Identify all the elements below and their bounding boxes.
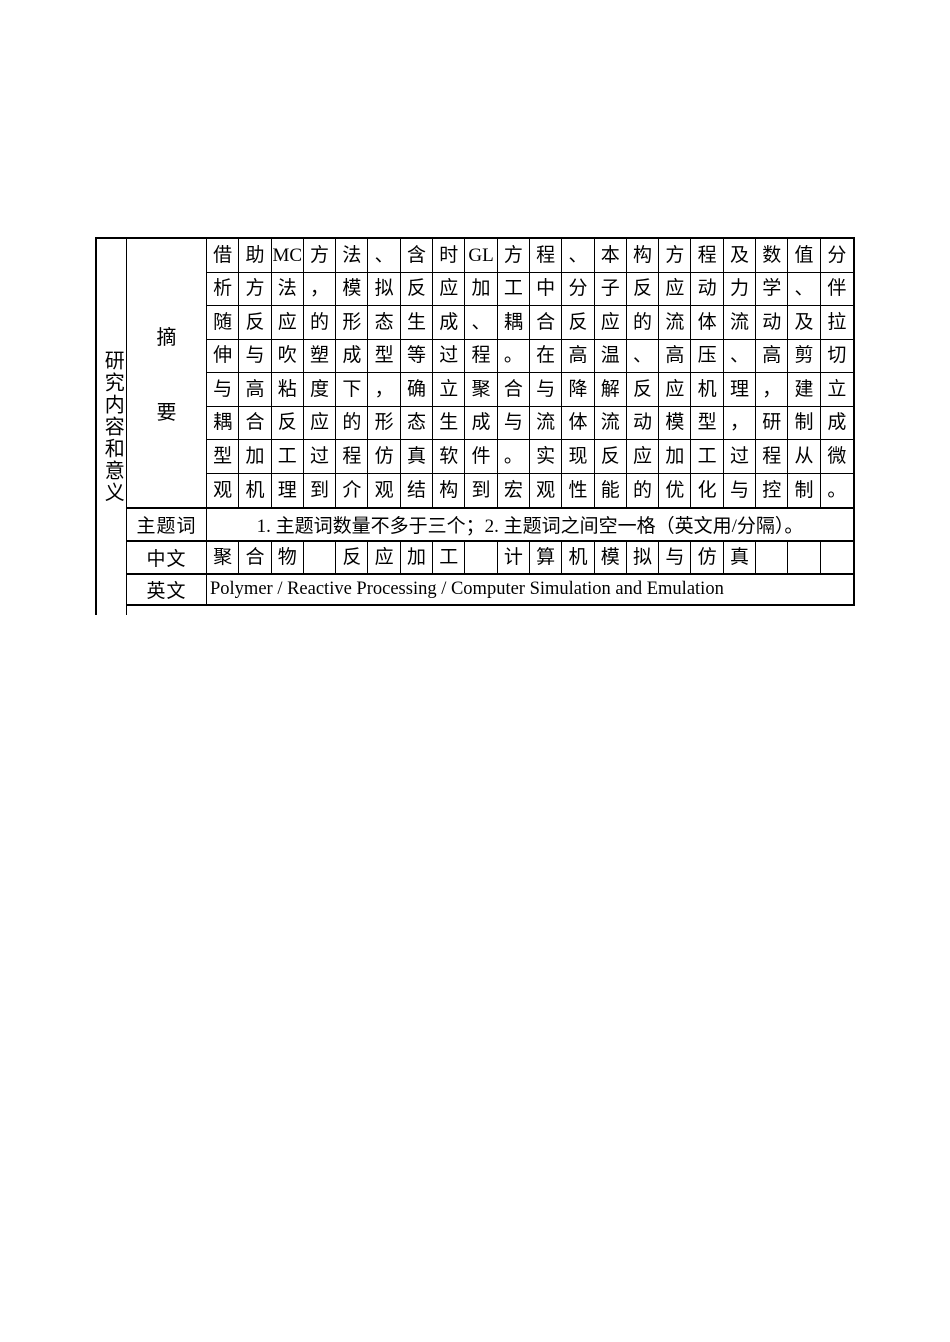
abstract-char-cell: 件 [465,440,497,474]
abstract-char-cell: 等 [401,340,433,374]
abstract-char-cell: 过 [724,440,756,474]
abstract-char-cell: 观 [207,474,239,508]
abstract-char-cell: GL [465,239,497,273]
abstract-char-cell: 切 [821,340,853,374]
abstract-char-cell: 工 [272,440,304,474]
abstract-char-cell: 体 [691,306,723,340]
abstract-char-cell: 反 [401,273,433,307]
abstract-char-cell: 型 [691,407,723,441]
abstract-char-cell: 、 [788,273,820,307]
abstract-char-cell: 反 [239,306,271,340]
abstract-char-cell: 态 [401,407,433,441]
abstract-char-cell: 。 [498,340,530,374]
abstract-char-cell: 观 [530,474,562,508]
abstract-label-cell: 摘 要 [127,239,207,507]
abstract-char-cell: 加 [239,440,271,474]
english-keywords-row: 英文 Polymer / Reactive Processing / Compu… [127,575,853,606]
abstract-char-cell: ， [756,373,788,407]
abstract-char-cell: 控 [756,474,788,508]
abstract-char-cell: 及 [788,306,820,340]
chinese-keyword-char-cell [821,542,853,573]
abstract-char-cell: 确 [401,373,433,407]
abstract-char-cell: 结 [401,474,433,508]
abstract-char-cell: 分 [562,273,594,307]
abstract-char-cell: 程 [465,340,497,374]
abstract-char-cell: 反 [272,407,304,441]
abstract-char-cell: 构 [627,239,659,273]
row-header-vertical-label: 研究内容和意义 [101,350,123,504]
abstract-char-cell: 态 [368,306,400,340]
abstract-char-cell: 成 [433,306,465,340]
abstract-char-cell: 应 [304,407,336,441]
abstract-char-cell: 伸 [207,340,239,374]
chinese-keyword-char-cell [304,542,336,573]
abstract-char-cell: 加 [659,440,691,474]
abstract-char-cell: 流 [595,407,627,441]
abstract-char-cell: 方 [659,239,691,273]
abstract-char-cell: 、 [627,340,659,374]
abstract-char-cell: ， [724,407,756,441]
chinese-keyword-char-cell: 聚 [207,542,239,573]
abstract-char-cell: 中 [530,273,562,307]
row-header-cell: 研究内容和意义 [95,237,127,615]
abstract-char-cell: 高 [562,340,594,374]
abstract-char-cell: 反 [595,440,627,474]
abstract-char-cell: 合 [239,407,271,441]
abstract-char-cell: 解 [595,373,627,407]
abstract-char-cell: 实 [530,440,562,474]
abstract-char-cell: 学 [756,273,788,307]
abstract-char-cell: 耦 [207,407,239,441]
chinese-keywords-row: 中文 聚合物反应加工计算机模拟与仿真 [127,542,853,575]
abstract-char-cell: 与 [498,407,530,441]
chinese-keyword-char-cell [756,542,788,573]
abstract-char-cell: 形 [368,407,400,441]
abstract-label-char-2: 要 [157,396,177,425]
abstract-char-cell: 塑 [304,340,336,374]
abstract-char-cell: 介 [336,474,368,508]
abstract-char-cell: 能 [595,474,627,508]
english-keywords-value: Polymer / Reactive Processing / Computer… [207,575,853,604]
abstract-char-cell: 真 [401,440,433,474]
abstract-char-cell: 下 [336,373,368,407]
abstract-char-cell: 。 [498,440,530,474]
abstract-char-cell: 优 [659,474,691,508]
abstract-char-cell: 从 [788,440,820,474]
chinese-keyword-char-cell: 反 [336,542,368,573]
chinese-label: 中文 [127,542,207,573]
abstract-char-cell: 研 [756,407,788,441]
abstract-char-cell: 析 [207,273,239,307]
abstract-char-cell: 流 [530,407,562,441]
abstract-char-cell: 型 [207,440,239,474]
abstract-char-cell: 与 [530,373,562,407]
abstract-section: 摘 要 借助MC方法、含时GL方程、本构方程及数值分析方法，模拟反应加工中分子反… [127,239,853,509]
abstract-char-cell: 应 [659,373,691,407]
abstract-char-cell: 借 [207,239,239,273]
chinese-keyword-char-cell: 算 [530,542,562,573]
abstract-char-cell: 、 [465,306,497,340]
abstract-char-cell: 方 [239,273,271,307]
abstract-char-cell: 应 [659,273,691,307]
abstract-char-cell: 过 [433,340,465,374]
abstract-char-cell: 分 [821,239,853,273]
abstract-char-cell: 理 [724,373,756,407]
abstract-char-cell: ， [304,273,336,307]
abstract-char-cell: 应 [595,306,627,340]
keywords-label: 主题词 [127,509,207,540]
abstract-char-cell: 方 [304,239,336,273]
keywords-instruction-note: 1. 主题词数量不多于三个；2. 主题词之间空一格（英文用/分隔）。 [207,509,853,540]
chinese-keyword-char-cell: 与 [659,542,691,573]
chinese-keyword-char-cell: 应 [368,542,400,573]
abstract-char-cell: 现 [562,440,594,474]
abstract-char-cell: 立 [821,373,853,407]
abstract-char-cell: 降 [562,373,594,407]
chinese-keyword-char-cell: 拟 [627,542,659,573]
abstract-char-cell: 成 [821,407,853,441]
abstract-char-cell: 值 [788,239,820,273]
abstract-char-cell: 到 [465,474,497,508]
abstract-char-cell: 数 [756,239,788,273]
abstract-char-cell: 与 [724,474,756,508]
abstract-char-cell: 与 [207,373,239,407]
abstract-char-cell: 软 [433,440,465,474]
abstract-char-cell: 机 [691,373,723,407]
abstract-char-cell: 制 [788,474,820,508]
abstract-char-cell: 生 [433,407,465,441]
abstract-char-cell: 含 [401,239,433,273]
chinese-keyword-char-cell: 加 [401,542,433,573]
abstract-char-cell: 体 [562,407,594,441]
abstract-char-cell: 合 [498,373,530,407]
abstract-char-cell: 压 [691,340,723,374]
abstract-char-cell: 理 [272,474,304,508]
abstract-char-cell: 应 [433,273,465,307]
abstract-char-cell: 方 [498,239,530,273]
abstract-char-cell: 反 [627,373,659,407]
chinese-keyword-char-cell [465,542,497,573]
abstract-char-cell: 时 [433,239,465,273]
abstract-char-cell: 反 [627,273,659,307]
abstract-char-cell: 动 [691,273,723,307]
abstract-char-cell: 模 [336,273,368,307]
abstract-char-cell: 的 [336,407,368,441]
abstract-char-cell: 加 [465,273,497,307]
abstract-char-cell: 剪 [788,340,820,374]
abstract-char-cell: 构 [433,474,465,508]
abstract-char-cell: 微 [821,440,853,474]
abstract-char-cell: 生 [401,306,433,340]
abstract-char-cell: 流 [724,306,756,340]
chinese-keyword-char-cell: 真 [724,542,756,573]
abstract-char-cell: 的 [627,474,659,508]
keywords-row: 主题词 1. 主题词数量不多于三个；2. 主题词之间空一格（英文用/分隔）。 [127,509,853,542]
chinese-keyword-char-cell [788,542,820,573]
abstract-char-cell: 聚 [465,373,497,407]
abstract-char-cell: 度 [304,373,336,407]
abstract-char-cell: 反 [562,306,594,340]
abstract-char-cell: 化 [691,474,723,508]
abstract-char-cell: 法 [272,273,304,307]
abstract-char-cell: 子 [595,273,627,307]
abstract-char-cell: 程 [336,440,368,474]
abstract-char-cell: 到 [304,474,336,508]
abstract-char-cell: 宏 [498,474,530,508]
abstract-label-char-1: 摘 [157,321,177,350]
abstract-char-cell: 性 [562,474,594,508]
abstract-char-cell: 过 [304,440,336,474]
abstract-char-cell: 温 [595,340,627,374]
research-content-table: 研究内容和意义 摘 要 借助MC方法、含时GL方程、本构方程及数值分析方法，模拟… [95,237,855,615]
abstract-char-cell: 、 [724,340,756,374]
abstract-char-cell: 应 [272,306,304,340]
abstract-char-cell: 随 [207,306,239,340]
english-label: 英文 [127,575,207,604]
abstract-char-cell: 伴 [821,273,853,307]
abstract-char-cell: 制 [788,407,820,441]
abstract-char-cell: 程 [691,239,723,273]
abstract-char-cell: 建 [788,373,820,407]
abstract-char-cell: 、 [368,239,400,273]
abstract-char-cell: 成 [336,340,368,374]
abstract-char-cell: 观 [368,474,400,508]
abstract-char-cell: 。 [821,474,853,508]
abstract-char-cell: 法 [336,239,368,273]
abstract-char-cell: 在 [530,340,562,374]
abstract-char-cell: 吹 [272,340,304,374]
abstract-char-cell: 、 [562,239,594,273]
abstract-char-cell: 应 [627,440,659,474]
chinese-keyword-char-cell: 机 [562,542,594,573]
abstract-char-cell: MC [272,239,304,273]
abstract-char-cell: 动 [627,407,659,441]
table-main: 摘 要 借助MC方法、含时GL方程、本构方程及数值分析方法，模拟反应加工中分子反… [127,237,855,606]
chinese-keyword-char-cell: 物 [272,542,304,573]
abstract-char-cell: ， [368,373,400,407]
chinese-keyword-char-cell: 合 [239,542,271,573]
abstract-char-cell: 形 [336,306,368,340]
abstract-character-grid: 借助MC方法、含时GL方程、本构方程及数值分析方法，模拟反应加工中分子反应动力学… [207,239,853,507]
abstract-char-cell: 及 [724,239,756,273]
abstract-char-cell: 助 [239,239,271,273]
abstract-char-cell: 本 [595,239,627,273]
abstract-char-cell: 动 [756,306,788,340]
abstract-char-cell: 与 [239,340,271,374]
abstract-char-cell: 高 [659,340,691,374]
chinese-keyword-char-cell: 计 [498,542,530,573]
document-page: 研究内容和意义 摘 要 借助MC方法、含时GL方程、本构方程及数值分析方法，模拟… [0,0,950,1342]
abstract-char-cell: 粘 [272,373,304,407]
chinese-keyword-char-cell: 模 [595,542,627,573]
abstract-char-cell: 高 [756,340,788,374]
chinese-keywords-grid: 聚合物反应加工计算机模拟与仿真 [207,542,853,573]
abstract-char-cell: 力 [724,273,756,307]
abstract-char-cell: 工 [691,440,723,474]
abstract-char-cell: 拟 [368,273,400,307]
abstract-char-cell: 仿 [368,440,400,474]
abstract-char-cell: 程 [756,440,788,474]
abstract-char-cell: 合 [530,306,562,340]
abstract-char-cell: 流 [659,306,691,340]
abstract-char-cell: 耦 [498,306,530,340]
abstract-char-cell: 机 [239,474,271,508]
abstract-char-cell: 拉 [821,306,853,340]
abstract-char-cell: 工 [498,273,530,307]
chinese-keyword-char-cell: 仿 [691,542,723,573]
abstract-char-cell: 的 [627,306,659,340]
abstract-char-cell: 型 [368,340,400,374]
abstract-char-cell: 高 [239,373,271,407]
abstract-char-cell: 立 [433,373,465,407]
abstract-char-cell: 成 [465,407,497,441]
chinese-keyword-char-cell: 工 [433,542,465,573]
abstract-char-cell: 模 [659,407,691,441]
abstract-char-cell: 程 [530,239,562,273]
abstract-char-cell: 的 [304,306,336,340]
